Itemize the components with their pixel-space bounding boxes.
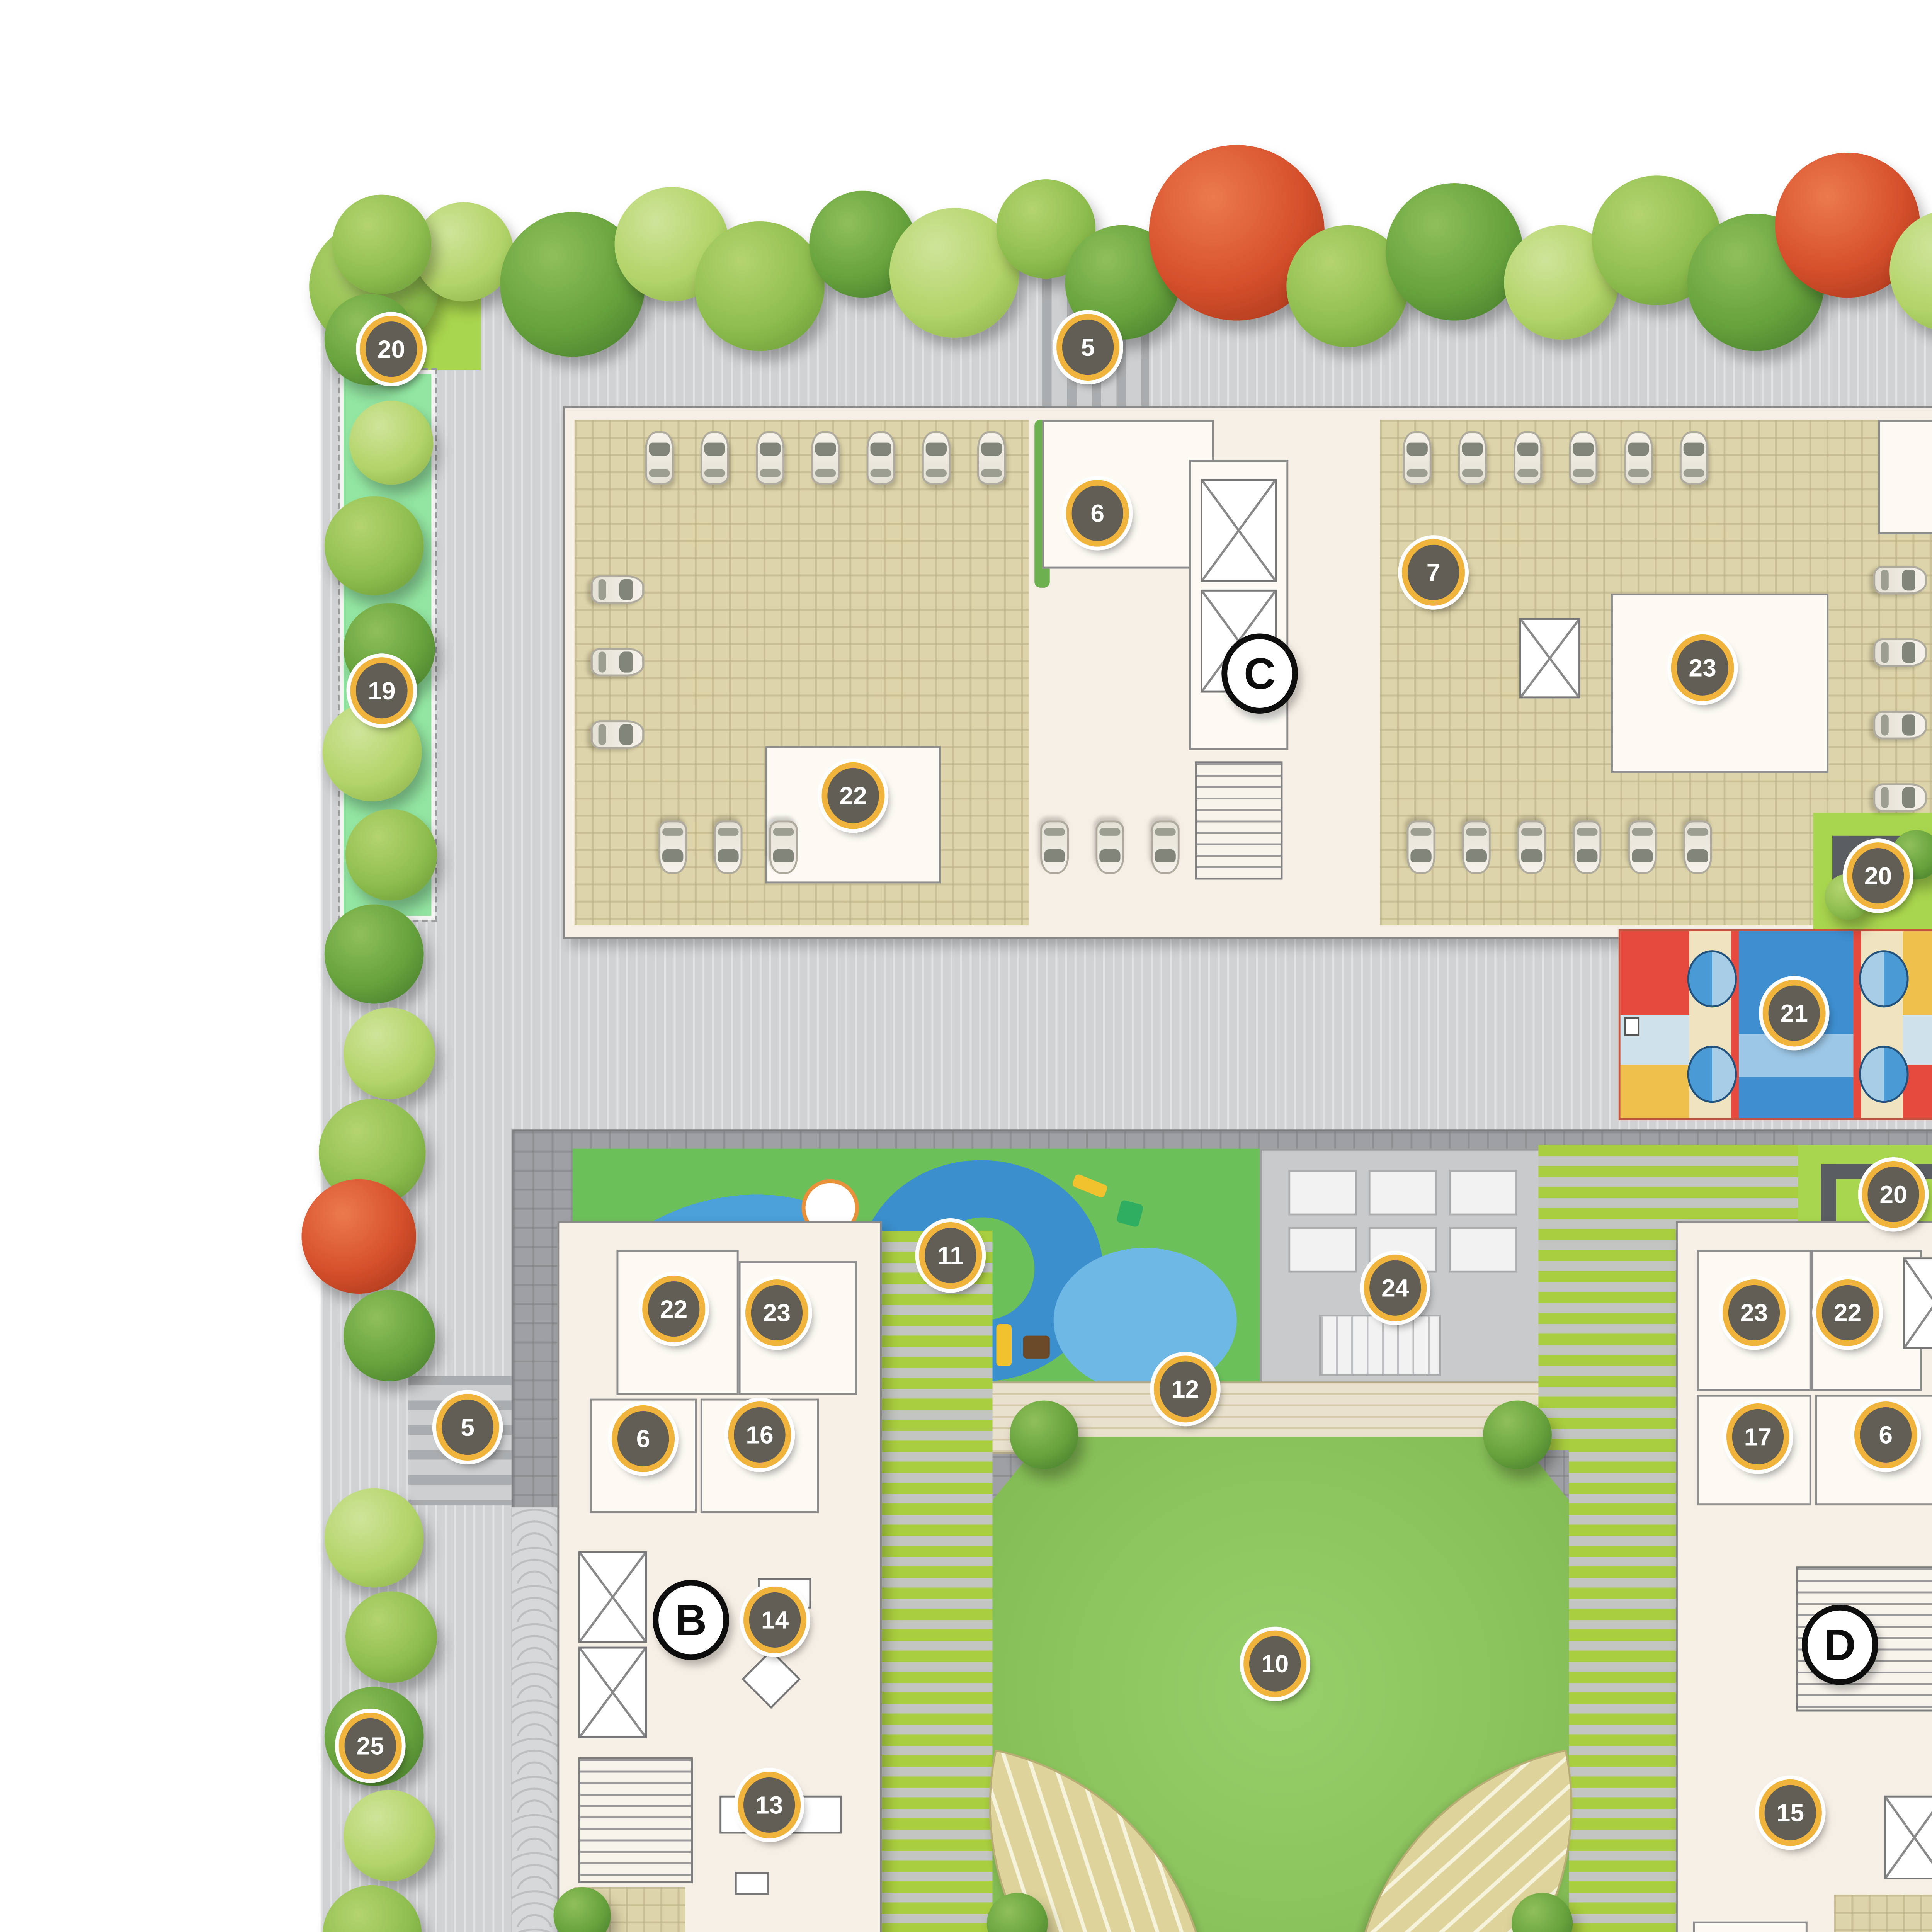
- pedestrian-walkway-left: [512, 1507, 561, 1932]
- tree-icon: [1483, 1401, 1552, 1469]
- flowering-tree-icon: [301, 1179, 416, 1294]
- marker-23: 23: [1671, 634, 1734, 701]
- car-icon: [1095, 820, 1124, 874]
- car-icon: [658, 820, 687, 874]
- marker-6: 6: [1854, 1401, 1917, 1468]
- car-icon: [1873, 711, 1927, 739]
- site-plan-canvas: 1233455556666778991011121314151617181920…: [0, 0, 1932, 1932]
- marker-14: 14: [743, 1587, 806, 1653]
- car-icon: [1624, 431, 1653, 485]
- marker-20: 20: [1847, 842, 1910, 909]
- elevator-icon: [578, 1551, 647, 1643]
- tree-icon: [325, 1488, 424, 1588]
- marker-22: 22: [642, 1276, 705, 1342]
- car-icon: [591, 575, 644, 604]
- building-label-D: D: [1802, 1605, 1878, 1685]
- tree-icon: [344, 1790, 435, 1881]
- car-icon: [591, 648, 644, 676]
- building-b: [557, 1221, 882, 1932]
- unit-room: [1878, 420, 1932, 534]
- car-icon: [756, 431, 784, 485]
- site-plan: 1233455556666778991011121314151617181920…: [0, 0, 1932, 1932]
- marker-19: 19: [350, 657, 413, 724]
- car-icon: [1514, 431, 1542, 485]
- car-icon: [701, 431, 729, 485]
- elevator-icon: [1884, 1796, 1932, 1879]
- car-icon: [591, 720, 644, 749]
- staircase-icon: [578, 1757, 693, 1883]
- marker-24: 24: [1364, 1255, 1427, 1321]
- car-icon: [1151, 820, 1180, 874]
- marker-10: 10: [1243, 1631, 1306, 1697]
- marker-6: 6: [612, 1405, 675, 1472]
- marker-20: 20: [1862, 1161, 1925, 1228]
- car-icon: [1873, 566, 1927, 594]
- tree-icon: [344, 1290, 435, 1381]
- car-icon: [1462, 820, 1491, 874]
- building-label-B: B: [653, 1580, 729, 1660]
- play-equipment-icon: [1116, 1199, 1144, 1228]
- tree-icon: [344, 1007, 435, 1099]
- car-icon: [1403, 431, 1432, 485]
- car-icon: [1569, 431, 1597, 485]
- marker-21: 21: [1763, 980, 1826, 1047]
- car-icon: [1458, 431, 1487, 485]
- car-icon: [1040, 820, 1069, 874]
- car-icon: [867, 431, 895, 485]
- car-icon: [922, 431, 951, 485]
- elevator-icon: [1519, 618, 1580, 698]
- car-icon: [714, 820, 742, 874]
- car-icon: [645, 431, 674, 485]
- slide-icon: [1071, 1173, 1108, 1198]
- marker-15: 15: [1759, 1779, 1822, 1846]
- marker-22: 22: [821, 762, 884, 829]
- car-icon: [1684, 820, 1712, 874]
- tree-icon: [332, 195, 431, 294]
- staircase-icon: [1195, 761, 1282, 879]
- common-toilets-d: [1693, 1922, 1807, 1932]
- elevator-icon: [578, 1647, 647, 1738]
- slide-icon: [996, 1324, 1012, 1366]
- tree-icon: [1010, 1401, 1078, 1469]
- marker-12: 12: [1154, 1356, 1217, 1423]
- elevator-icon: [1903, 1257, 1932, 1349]
- games-table-icon: [742, 1650, 801, 1709]
- car-icon: [977, 431, 1006, 485]
- elevator-icon: [1201, 479, 1277, 582]
- car-icon: [1873, 783, 1927, 812]
- marker-11: 11: [919, 1222, 982, 1289]
- tree-icon: [325, 496, 424, 595]
- marker-20: 20: [360, 316, 423, 383]
- car-icon: [1573, 820, 1601, 874]
- play-equipment-icon: [1023, 1336, 1050, 1359]
- tree-icon: [349, 401, 433, 485]
- marker-25: 25: [339, 1713, 402, 1779]
- marker-6: 6: [1066, 480, 1129, 547]
- car-icon: [1628, 820, 1656, 874]
- marker-17: 17: [1726, 1403, 1789, 1470]
- green-stripe-band-left-col: [882, 1231, 992, 1932]
- tree-icon: [345, 809, 437, 901]
- car-icon: [769, 820, 798, 874]
- car-icon: [1406, 820, 1435, 874]
- marker-13: 13: [738, 1772, 801, 1838]
- tree-icon: [345, 1591, 437, 1683]
- tree-icon: [695, 221, 825, 351]
- marker-22: 22: [1816, 1279, 1879, 1346]
- tree-icon: [325, 905, 424, 1004]
- basketball-hoop-icon: [1624, 1017, 1640, 1036]
- gym-equipment-icon: [735, 1872, 769, 1895]
- marker-5: 5: [1056, 314, 1119, 381]
- entrance-foyer-c: [1042, 420, 1214, 568]
- car-icon: [1517, 820, 1546, 874]
- building-label-C: C: [1221, 633, 1298, 713]
- car-icon: [1873, 638, 1927, 667]
- marker-5: 5: [436, 1394, 499, 1461]
- car-icon: [811, 431, 840, 485]
- marker-23: 23: [745, 1279, 808, 1346]
- marker-16: 16: [728, 1401, 791, 1468]
- marker-23: 23: [1723, 1279, 1786, 1346]
- tree-icon: [1386, 183, 1523, 321]
- parking-pocket-d: [1834, 1895, 1932, 1932]
- car-icon: [1680, 431, 1708, 485]
- marker-7: 7: [1402, 539, 1465, 606]
